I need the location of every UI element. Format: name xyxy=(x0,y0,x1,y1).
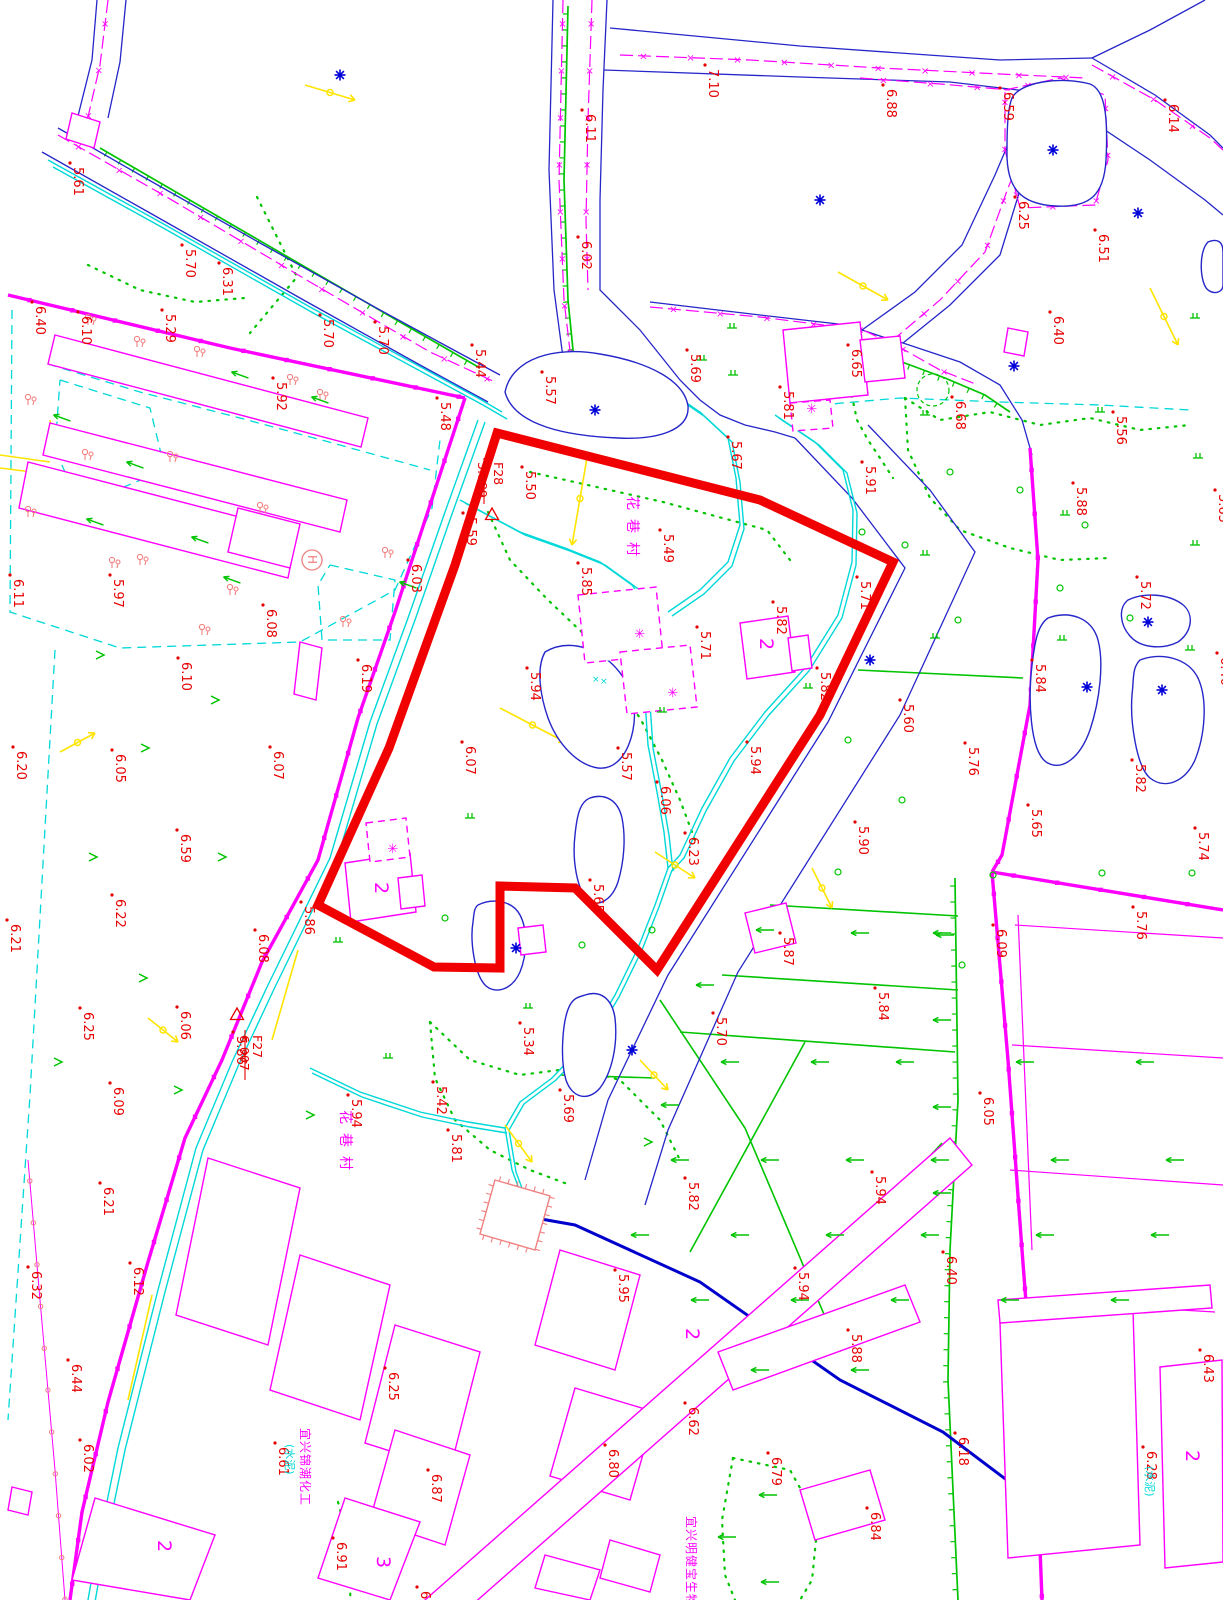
elevation-dot xyxy=(231,1030,234,1033)
elevation-label: 6.09 xyxy=(993,929,1008,958)
elevation-label: 5.81 xyxy=(780,391,795,420)
boundary-fence-tick xyxy=(70,1582,74,1586)
fence-x-icon: × xyxy=(440,354,448,365)
elevation-label: 6.88 xyxy=(883,89,898,118)
elevation-label: 5.65 xyxy=(590,884,605,913)
boundary-fence-tick xyxy=(306,876,310,880)
fence-x-icon: × xyxy=(973,83,981,94)
fence-x-icon: × xyxy=(1015,70,1023,81)
elevation-label: 6.79 xyxy=(768,1457,783,1486)
fence-x-icon: × xyxy=(999,196,1007,207)
boundary-fence-tick xyxy=(1023,731,1027,735)
elevation-label: 6.21 xyxy=(7,924,22,953)
elevation-label: 6.31 xyxy=(219,267,234,296)
elevation-dot xyxy=(525,666,528,669)
building xyxy=(535,1555,600,1600)
road-edge xyxy=(610,28,1092,60)
boundary-fence-tick xyxy=(1014,774,1018,778)
elevation-label: 5.76 xyxy=(1133,911,1148,940)
elevation-label: 5.94 xyxy=(747,746,762,775)
elevation-dot xyxy=(683,831,686,834)
hedge-tick xyxy=(367,305,370,309)
construction-hatch xyxy=(542,1223,547,1224)
elevation-label: 6.91 xyxy=(333,1542,348,1571)
elevation-dot xyxy=(108,1081,111,1084)
fence-x-icon: × xyxy=(557,66,565,77)
elevation-dot xyxy=(1141,1445,1144,1448)
boundary-fence-tick xyxy=(1185,902,1189,906)
parcel-line xyxy=(1015,925,1223,938)
elevation-label: 5.97 xyxy=(110,579,125,608)
elevation-label: 6.07 xyxy=(270,751,285,780)
elevation-dot xyxy=(998,86,1001,89)
material-label: (水泥) xyxy=(1143,1466,1156,1497)
elevation-label: 5.88 xyxy=(848,1334,863,1363)
elevation-dot xyxy=(576,561,579,564)
fence-x-icon: × xyxy=(399,332,407,343)
elevation-dot xyxy=(331,1536,334,1539)
road-edge xyxy=(1092,0,1205,58)
building xyxy=(176,1158,300,1345)
elevation-dot xyxy=(520,465,523,468)
elevation-label: 5.70 xyxy=(182,249,197,278)
elevation-label: 5.84 xyxy=(875,992,890,1021)
building-storey-label: 2 xyxy=(681,1328,703,1340)
building xyxy=(1160,1360,1223,1568)
elevation-label: 6.68 xyxy=(952,401,967,430)
elevation-dot xyxy=(953,1431,956,1434)
boundary-fence-tick xyxy=(1040,1594,1044,1598)
parcel-line xyxy=(1010,1170,1223,1185)
well-circle-icon xyxy=(579,942,585,948)
elevation-label: 5.92 xyxy=(273,382,288,411)
elevation-label: 6.10 xyxy=(78,316,93,345)
field-parcel-line xyxy=(722,975,958,990)
orchard-tree-icon xyxy=(347,619,351,623)
construction-hatch xyxy=(476,1228,481,1229)
hedge-tick xyxy=(451,353,453,357)
vegetation-boundary xyxy=(430,1022,680,1160)
orchard-tree-icon xyxy=(32,397,36,401)
elevation-label: 6.40 xyxy=(1050,316,1065,345)
elevation-dot xyxy=(446,1128,449,1131)
boundary-fence-tick xyxy=(322,836,326,840)
elevation-dot xyxy=(98,1181,101,1184)
elevation-dot xyxy=(898,698,901,701)
elevation-dot xyxy=(268,745,271,748)
elevation-label: 5.82 xyxy=(685,1182,700,1211)
elevation-label: 5.91 xyxy=(862,466,877,495)
shed-mark-icon: ✳ xyxy=(631,628,646,639)
fence-x-icon: × xyxy=(968,68,976,79)
boundary-fence-tick xyxy=(193,1115,197,1119)
material-label: (水泥) xyxy=(283,1444,296,1475)
fence-x-icon: × xyxy=(101,19,109,30)
fence-x-icon: × xyxy=(196,213,204,224)
elevation-label: 6.23 xyxy=(685,837,700,866)
orchard-tree-icon xyxy=(25,394,30,399)
boundary-fence-tick xyxy=(327,367,331,371)
elevation-dot xyxy=(415,1585,418,1588)
construction-hatch xyxy=(525,1184,526,1189)
elevation-dot xyxy=(870,1170,873,1173)
elevation-dot xyxy=(576,235,579,238)
boundary-fence-tick xyxy=(1006,1067,1010,1071)
boundary-fence-tick xyxy=(1006,817,1010,821)
building-storey-label: 2 xyxy=(153,1540,175,1552)
orchard-tree-icon xyxy=(201,349,205,353)
tree-star-center xyxy=(593,408,597,412)
transformer-letter: H xyxy=(305,555,319,564)
slope-mark-icon xyxy=(54,1058,62,1066)
elevation-label: 5.29 xyxy=(162,314,177,343)
orchard-tree-icon xyxy=(294,377,298,381)
elevation-dot xyxy=(778,931,781,934)
fence-x-icon: × xyxy=(940,367,948,378)
well-circle-icon xyxy=(835,869,841,875)
elevation-dot xyxy=(26,1265,29,1268)
elevation-label: 5.42 xyxy=(433,1086,448,1115)
boundary-fence-tick xyxy=(1098,888,1102,892)
hedge-line xyxy=(948,878,958,1600)
elevation-label: 6.25 xyxy=(80,1012,95,1041)
boundary-fence-tick xyxy=(83,1495,87,1499)
orchard-tree-icon xyxy=(382,547,387,552)
fence-x-icon: × xyxy=(555,160,563,171)
orchard-tree-icon xyxy=(141,339,145,343)
well-circle-icon xyxy=(859,529,865,535)
elevation-dot xyxy=(461,511,464,514)
power-line xyxy=(640,1060,668,1090)
fence-x-icon: × xyxy=(115,165,123,176)
place-name-label: 花巷村 xyxy=(337,1110,353,1179)
elevation-label: 5.69 xyxy=(560,1094,575,1123)
building-storey-label: 2 xyxy=(755,638,777,650)
boundary-fence-tick xyxy=(212,1075,216,1079)
vegetation-boundary xyxy=(250,197,297,333)
elevation-label: 5.34 xyxy=(520,1027,535,1056)
elevation-label: 6.59 xyxy=(1000,92,1015,121)
construction-hatch xyxy=(550,1197,555,1198)
elevation-dot xyxy=(1093,228,1096,231)
orchard-tree-stem xyxy=(145,561,146,565)
elevation-label: 5.67 xyxy=(728,441,743,470)
elevation-label: 5.71 xyxy=(697,631,712,660)
elevation-dot xyxy=(1013,195,1016,198)
tree-star-center xyxy=(630,1048,634,1052)
elevation-dot xyxy=(658,528,661,531)
building-storey-label: 2 xyxy=(370,882,392,894)
pond xyxy=(563,994,616,1097)
boundary-fence-tick xyxy=(156,329,160,333)
elevation-dot xyxy=(540,370,543,373)
elevation-label: 6.19 xyxy=(358,664,373,693)
elevation-dot xyxy=(683,1176,686,1179)
building xyxy=(788,635,812,671)
building-storey-label: 3 xyxy=(372,1556,394,1568)
elevation-label: 6.08 xyxy=(263,609,278,638)
vegetation-boundary xyxy=(905,398,1110,560)
fence-x-icon: × xyxy=(318,284,326,295)
power-line xyxy=(305,85,355,100)
elevation-dot xyxy=(865,1506,868,1509)
elevation-label: 5.71 xyxy=(857,581,872,610)
tree-star-center xyxy=(514,946,518,950)
elevation-label: 6.21 xyxy=(100,1187,115,1216)
elevation-label: 6.10 xyxy=(178,662,193,691)
parcel-line xyxy=(1012,1045,1223,1058)
road-edge xyxy=(600,0,612,302)
slope-mark-icon xyxy=(306,1111,314,1119)
elevation-dot xyxy=(603,1443,606,1446)
place-name-label: 宜兴明健宝生物公司 xyxy=(684,1516,699,1600)
place-name-label: 花巷村 xyxy=(624,496,640,565)
elevation-label: 5.82 xyxy=(1132,764,1147,793)
fence-dotted xyxy=(28,1160,65,1600)
orchard-tree-icon xyxy=(116,560,120,564)
elevation-label: 6.40 xyxy=(1217,657,1223,686)
elevation-label: 5.76 xyxy=(965,747,980,776)
field-parcel-line xyxy=(690,1042,805,1252)
power-arrowhead-icon xyxy=(832,901,833,908)
elevation-label: 7.10 xyxy=(705,69,720,98)
tree-star-center xyxy=(1051,148,1055,152)
construction-hatch xyxy=(547,1206,552,1207)
hedge-tick xyxy=(908,365,910,370)
orchard-tree-stem xyxy=(117,564,118,568)
elevation-dot xyxy=(846,1328,849,1331)
elevation-label: 5.70 xyxy=(375,326,390,355)
elevation-dot xyxy=(271,376,274,379)
elevation-dot xyxy=(180,243,183,246)
elevation-label: 5.50 xyxy=(522,471,537,500)
hedge-tick xyxy=(395,321,398,325)
hedge-tick xyxy=(423,337,425,341)
building-under-construction xyxy=(480,1180,550,1250)
orchard-tree-stem xyxy=(235,591,236,595)
boundary-fence-tick xyxy=(198,339,202,343)
construction-hatch xyxy=(491,1238,492,1243)
place-name-label: 宜兴锦潮化工 xyxy=(298,1428,313,1506)
elevation-label: 6.87 xyxy=(428,1474,443,1503)
tree-star-center xyxy=(1160,688,1164,692)
orchard-tree-icon xyxy=(389,550,393,554)
boundary-fence-tick xyxy=(1142,895,1146,899)
orchard-tree-stem xyxy=(325,396,326,400)
boundary-fence-tick xyxy=(1013,1155,1017,1159)
fence-x-icon: × xyxy=(983,240,991,251)
construction-hatch xyxy=(538,1241,543,1242)
building-storey-label: 2 xyxy=(1181,1450,1203,1462)
elevation-label: 5.94 xyxy=(795,1272,810,1301)
elevation-dot xyxy=(580,108,583,111)
elevation-label: 6.40 xyxy=(32,306,47,335)
elevation-label: 5.48 xyxy=(437,402,452,431)
elevation-dot xyxy=(426,1468,429,1471)
elevation-dot xyxy=(1026,803,1029,806)
construction-hatch xyxy=(508,1243,509,1248)
orchard-tree-stem xyxy=(33,513,34,517)
shed-mark-icon: ✳ xyxy=(384,843,399,854)
elevation-label: 5.82 xyxy=(817,672,832,701)
orchard-tree-stem xyxy=(295,381,296,385)
slope-mark-icon xyxy=(218,853,226,861)
yellow-line xyxy=(272,950,298,1040)
boundary-fence-tick xyxy=(164,1198,168,1202)
hedge-tick xyxy=(464,360,466,364)
tree-star-center xyxy=(1012,364,1016,368)
elevation-label: 5.94 xyxy=(872,1176,887,1205)
elevation-dot xyxy=(1130,758,1133,761)
hedge-tick xyxy=(437,345,439,349)
hedge-tick xyxy=(994,403,997,407)
boundary-fence-tick xyxy=(456,417,460,421)
survey-map: ××××××××××××××××××××××××××××××××××××××××… xyxy=(0,0,1223,1600)
elevation-dot xyxy=(66,1358,69,1361)
well-circle-icon xyxy=(959,962,965,968)
field-parcel-line xyxy=(770,905,958,916)
elevation-dot xyxy=(176,656,179,659)
fence-x-icon: × xyxy=(358,308,366,319)
building xyxy=(518,925,546,955)
fence-x-icon: × xyxy=(556,207,564,218)
elevation-label: 6.12 xyxy=(130,1267,145,1296)
orchard-tree-icon xyxy=(324,392,328,396)
boundary-fence-tick xyxy=(1010,1111,1014,1115)
boundary-fence-tick xyxy=(152,1240,156,1244)
elevation-dot xyxy=(175,1005,178,1008)
boundary-fence-tick xyxy=(127,1324,131,1328)
construction-hatch xyxy=(540,1232,545,1233)
building xyxy=(8,1487,32,1515)
shed-building xyxy=(366,818,410,862)
power-line xyxy=(60,733,95,752)
elevation-label: 6.11 xyxy=(10,579,25,608)
construction-hatch xyxy=(481,1211,486,1212)
power-arrowhead-icon xyxy=(569,538,572,545)
elevation-dot xyxy=(1213,488,1216,491)
elevation-label: 6.22 xyxy=(112,899,127,928)
elevation-dot xyxy=(745,740,748,743)
elevation-label: 6.51 xyxy=(1095,234,1110,263)
building xyxy=(270,1255,390,1420)
orchard-tree-stem xyxy=(142,343,143,347)
slope-mark-icon xyxy=(89,853,97,861)
road-edge xyxy=(650,302,903,343)
fence-x-icon: × xyxy=(1108,72,1116,83)
construction-hatch xyxy=(500,1240,501,1245)
elevation-dot xyxy=(110,893,113,896)
boundary-fence-tick xyxy=(246,994,250,998)
fence-x-icon: × xyxy=(1149,95,1157,106)
tree-star-center xyxy=(1085,685,1089,689)
boundary-fence-tick xyxy=(76,1538,80,1542)
elevation-dot xyxy=(431,1080,434,1083)
road-edge xyxy=(108,0,126,118)
elevation-label: 5.72 xyxy=(1137,581,1152,610)
fence-x-icon: × xyxy=(237,237,245,248)
road-edge xyxy=(75,0,97,128)
elevation-label: 5.81 xyxy=(448,1134,463,1163)
elevation-dot xyxy=(771,600,774,603)
boundary-fence-tick xyxy=(70,308,74,312)
orchard-tree-icon xyxy=(317,389,322,394)
boundary-fence-tick xyxy=(1029,468,1033,472)
fence-x-icon: × xyxy=(920,309,928,320)
boundary-fence-tick xyxy=(387,626,391,630)
elevation-label: 5.94 xyxy=(527,672,542,701)
elevation-dot xyxy=(655,780,658,783)
building xyxy=(600,1540,660,1592)
orchard-tree-icon xyxy=(287,374,292,379)
elevation-label: 6.09 xyxy=(110,1087,125,1116)
boundary-fence-tick xyxy=(115,1367,119,1371)
cyan-mark-icon: × xyxy=(600,677,608,687)
elevation-dot xyxy=(11,745,14,748)
boundary-fence-tick xyxy=(999,979,1003,983)
well-circle-icon xyxy=(902,542,908,548)
boundary-fence-tick xyxy=(104,1409,108,1413)
elevation-label: 5.60 xyxy=(900,704,915,733)
slope-mark-icon xyxy=(174,1086,182,1094)
tree-star-center xyxy=(868,658,872,662)
tree-star-center xyxy=(338,73,342,77)
slope-mark-icon xyxy=(96,651,104,659)
orchard-tree-icon xyxy=(227,584,232,589)
orchard-tree-stem xyxy=(390,554,391,558)
boundary-fence-tick xyxy=(113,318,117,322)
power-arrowhead-icon xyxy=(1178,338,1179,345)
elevation-dot xyxy=(793,1266,796,1269)
elevation-label: 5.90 xyxy=(855,826,870,855)
elevation-label: 5.69 xyxy=(687,354,702,383)
elevation-label: 6.11 xyxy=(582,114,597,143)
yellow-line xyxy=(0,455,50,462)
elevation-dot xyxy=(950,395,953,398)
boundary-fence-tick xyxy=(334,793,338,797)
power-line xyxy=(812,868,832,908)
elevation-label: 6.65 xyxy=(848,349,863,378)
elevation-dot xyxy=(1071,481,1074,484)
hedge-tick xyxy=(409,329,411,333)
elevation-dot xyxy=(855,575,858,578)
power-line xyxy=(1150,288,1178,345)
boundary-fence-tick xyxy=(1055,881,1059,885)
elevation-label: 6.62 xyxy=(685,1407,700,1436)
elevation-dot xyxy=(703,63,706,66)
building xyxy=(294,642,322,700)
elevation-dot xyxy=(346,1093,349,1096)
fence-x-icon: × xyxy=(874,63,882,74)
fence-x-icon: × xyxy=(560,301,568,312)
elevation-dot xyxy=(373,320,376,323)
boundary-fence-tick xyxy=(284,915,288,919)
elevation-dot xyxy=(1193,826,1196,829)
elevation-label: 6.78 xyxy=(417,1591,432,1600)
elevation-dot xyxy=(1215,651,1218,654)
elevation-label: 5.88 xyxy=(1073,487,1088,516)
construction-hatch xyxy=(486,1193,491,1194)
fence-x-icon: × xyxy=(277,261,285,272)
boundary-fence-tick xyxy=(429,500,433,504)
orchard-tree-icon xyxy=(109,557,114,562)
elevation-label: 6.03 xyxy=(408,564,423,593)
elevation-dot xyxy=(273,1441,276,1444)
construction-hatch xyxy=(499,1176,500,1181)
elevation-dot xyxy=(299,900,302,903)
elevation-dot xyxy=(1048,310,1051,313)
power-line xyxy=(148,1018,178,1042)
